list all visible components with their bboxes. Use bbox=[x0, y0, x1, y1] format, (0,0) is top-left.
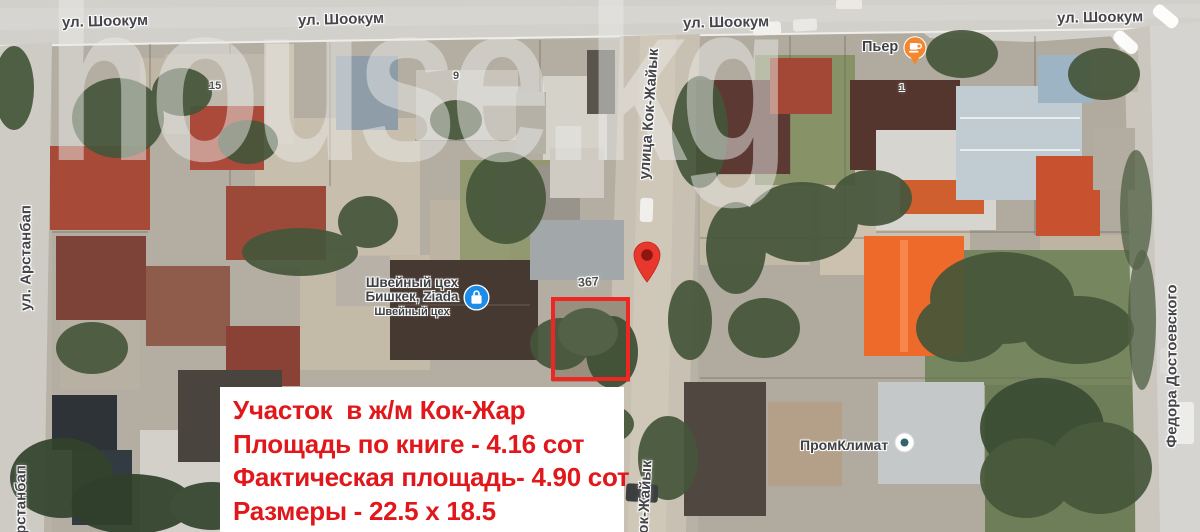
place-dot-icon[interactable] bbox=[894, 432, 915, 458]
street-label-arstanbap-south: Арстанбап bbox=[13, 465, 30, 532]
info-line-registered-area: Площадь по книге - 4.16 сот bbox=[233, 428, 624, 462]
poi-sewing[interactable]: Швейный цех Бишкек, Ziada Швейный цех bbox=[362, 276, 512, 318]
street-label-dostoevskogo: Федора Достоевского bbox=[1164, 284, 1181, 447]
poi-promklimat-label: ПромКлимат bbox=[800, 437, 888, 453]
info-box: Участок в ж/м Кок-Жар Площадь по книге -… bbox=[220, 387, 624, 532]
poi-pier-label: Пьер bbox=[862, 39, 898, 55]
house-number-1: 1 bbox=[899, 83, 905, 94]
poi-sewing-name-line1: Швейный цех bbox=[362, 276, 462, 290]
street-label-shookum-2: ул. Шоокум bbox=[298, 10, 385, 29]
street-label-shookum-4: ул. Шоокум bbox=[1057, 8, 1143, 27]
house-number-15: 15 bbox=[209, 80, 221, 92]
poi-sewing-name-line2: Бишкек, Ziada bbox=[362, 290, 462, 304]
street-label-arstanbap: ул. Арстанбап bbox=[18, 205, 35, 311]
house-number-9: 9 bbox=[453, 70, 459, 82]
poi-pier[interactable]: Пьер bbox=[862, 36, 927, 71]
cafe-icon[interactable] bbox=[903, 36, 927, 71]
satellite-map[interactable]: house.kg ул. Шоокум ул. Шоокум ул. Шооку… bbox=[0, 0, 1200, 532]
info-line-dimensions: Размеры - 22.5 x 18.5 bbox=[233, 495, 624, 529]
poi-sewing-sublabel: Швейный цех bbox=[362, 306, 462, 318]
street-label-shookum-1: ул. Шоокум bbox=[62, 12, 149, 31]
poi-promklimat[interactable]: ПромКлимат bbox=[800, 432, 915, 458]
parcel-highlight bbox=[551, 297, 630, 381]
info-line-actual-area: Фактическая площадь- 4.90 сот bbox=[233, 461, 624, 495]
street-label-shookum-3: ул. Шоокум bbox=[683, 13, 769, 32]
shopping-bag-icon[interactable] bbox=[463, 284, 490, 316]
map-marker[interactable] bbox=[631, 240, 663, 289]
house-number-367: 367 bbox=[578, 274, 600, 289]
info-line-title: Участок в ж/м Кок-Жар bbox=[233, 394, 624, 428]
